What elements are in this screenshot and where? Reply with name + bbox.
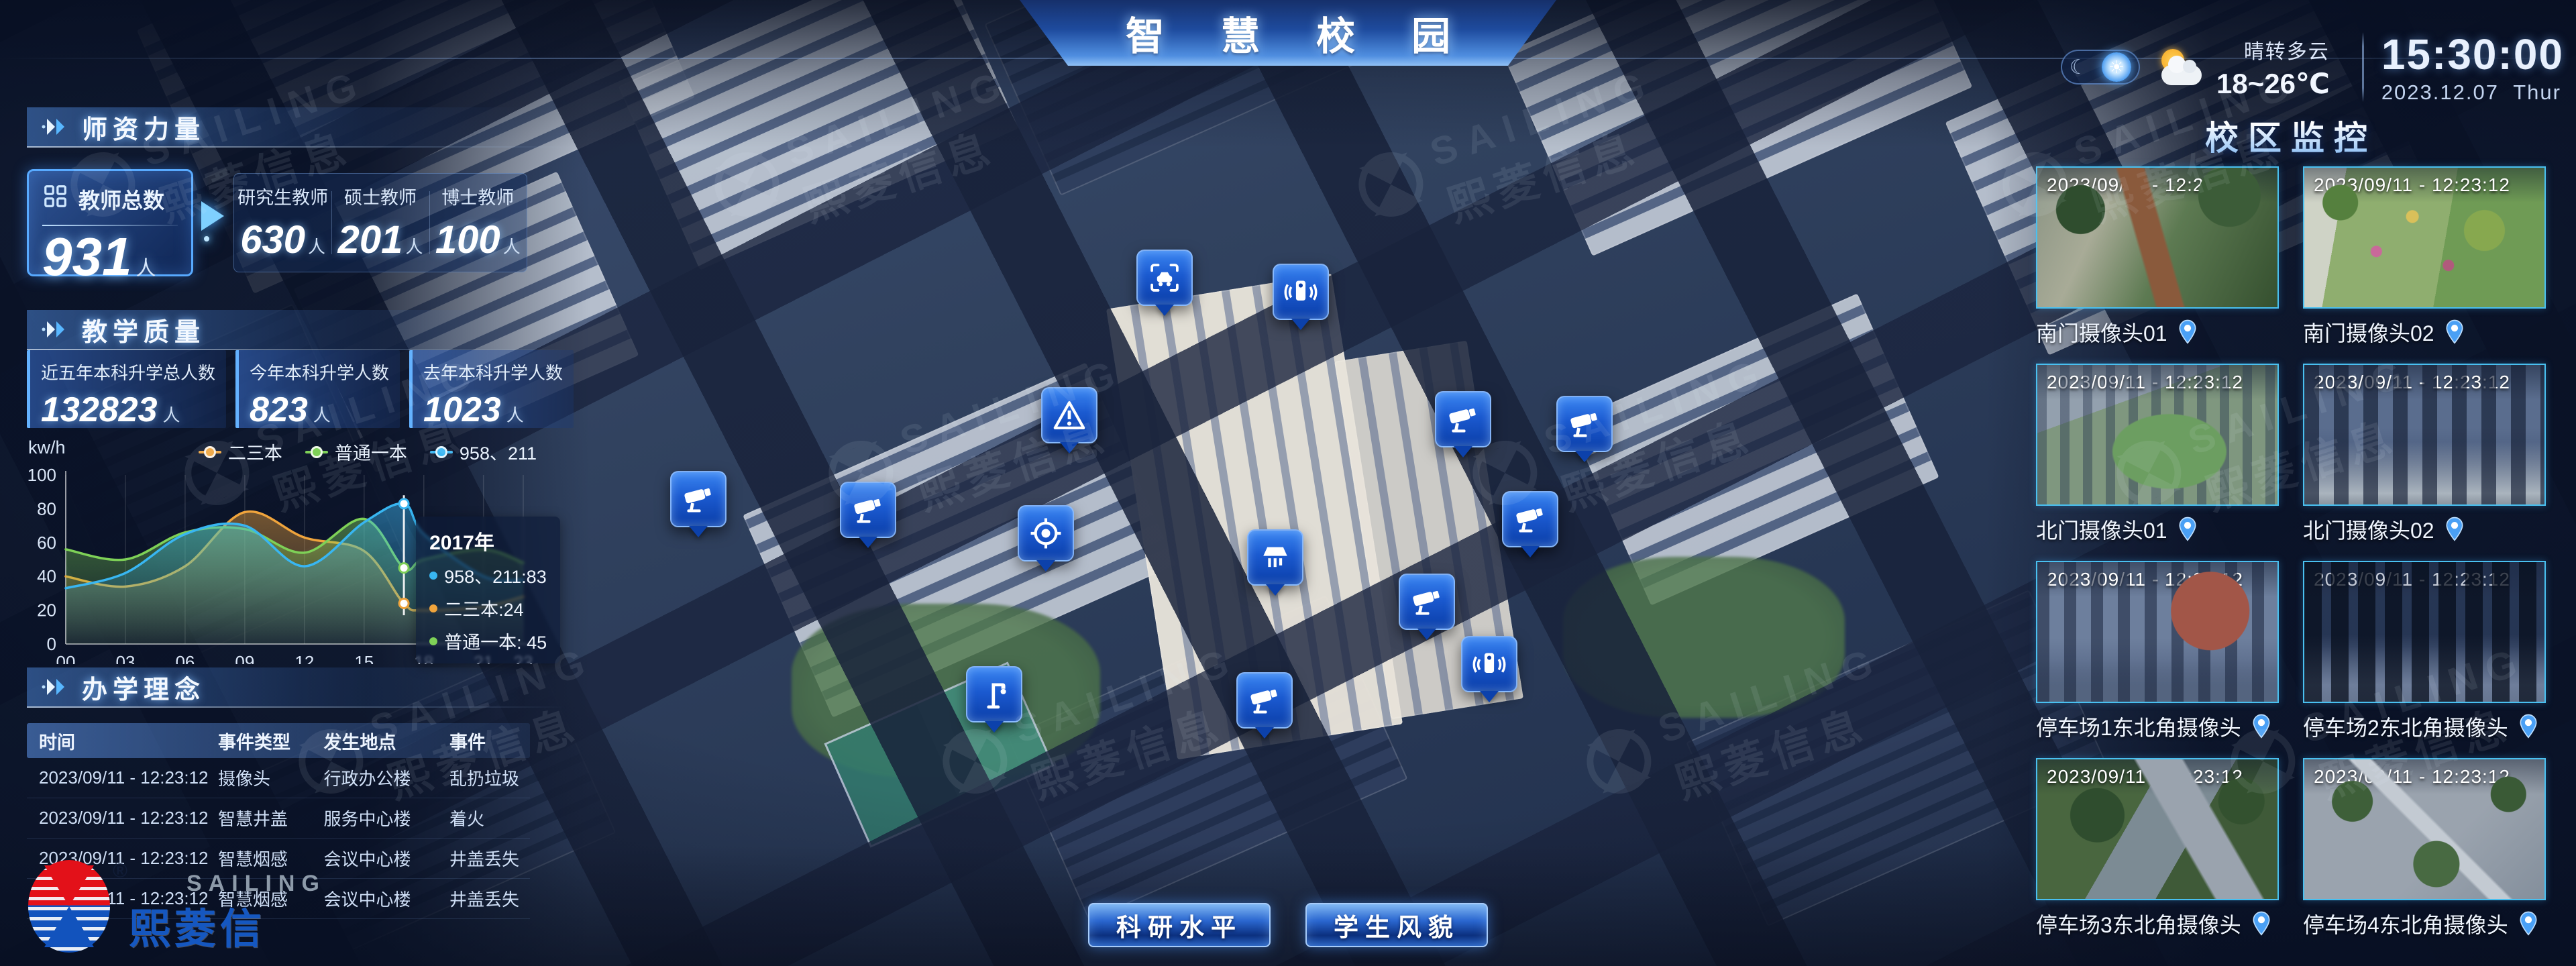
quality-stats: 近五年本科升学总人数 132823人今年本科升学人数 823人去年本科升学人数 … — [27, 350, 530, 428]
table-cell: 摄像头 — [218, 765, 324, 790]
camera-feed-5[interactable]: 2023/09/11 - 12:23:12 停车场1东北角摄像头 — [2036, 561, 2279, 742]
table-cell: 会议中心楼 — [324, 886, 450, 911]
logo-text-cn: 熙菱信息 — [129, 895, 310, 966]
quality-stat-card: 今年本科升学人数 823人 — [235, 350, 400, 428]
camera-timestamp: 2023/09/11 - 12:23:12 — [2037, 365, 2277, 400]
section-title: 办学理念 — [82, 669, 205, 706]
chart-tooltip: 2017年 958、211:83二三本:24普通一本: 45 — [416, 517, 560, 663]
car-scan-marker[interactable] — [1136, 250, 1193, 306]
arrow-right-icon — [201, 201, 224, 231]
weather-condition: 晴转多云 — [2216, 35, 2330, 64]
legend-marker — [305, 451, 328, 453]
card-divider — [42, 225, 178, 226]
section-title: 师资力量 — [82, 109, 205, 146]
camera-timestamp: 2023/09/11 - 12:23:12 — [2304, 365, 2544, 400]
research-level-button[interactable]: 科研水平 — [1088, 903, 1271, 947]
moon-icon[interactable]: ☾ — [2070, 56, 2088, 79]
legend-item[interactable]: 958、211 — [430, 439, 537, 465]
stat-label: 近五年本科升学总人数 — [41, 360, 215, 384]
clock-time: 15:30:00 — [2381, 30, 2564, 79]
camera-feed-7[interactable]: 2023/09/11 - 12:23:12 停车场3东北角摄像头 — [2036, 758, 2279, 939]
section-header-monitor: 校区监控 — [2036, 111, 2546, 160]
stat-label: 去年本科升学人数 — [423, 360, 563, 384]
page-title: 智 慧 校 园 — [1103, 5, 1473, 61]
tooltip-row: 二三本:24 — [429, 595, 547, 621]
table-cell: 井盖丢失 — [449, 886, 530, 911]
camera-grid: 2023/09/11 - 12:23:12 南门摄像头01 2023/09/11… — [2036, 166, 2546, 939]
table-cell: 会议中心楼 — [324, 846, 450, 871]
camera-timestamp: 2023/09/11 - 12:23:12 — [2304, 759, 2544, 794]
logo-text-en: SAILING — [186, 871, 326, 897]
camera-label: 南门摄像头01 — [2036, 317, 2279, 347]
svg-text:0: 0 — [47, 634, 56, 654]
topbar-separator — [2362, 32, 2364, 102]
camera-image[interactable]: 2023/09/11 - 12:23:12 — [2036, 561, 2279, 703]
series-dot — [429, 604, 437, 612]
table-cell: 着火 — [449, 806, 530, 830]
teacher-total-card[interactable]: 教师总数 931人 — [27, 169, 193, 276]
cctv-camera-marker[interactable] — [1236, 672, 1293, 729]
legend-label: 958、211 — [460, 439, 537, 465]
table-cell: 乱扔垃圾 — [449, 765, 530, 790]
camera-timestamp: 2023/09/11 - 12:23:12 — [2304, 168, 2544, 203]
teacher-total-label: 教师总数 — [78, 184, 164, 215]
weather-temperature: 18~26℃ — [2216, 67, 2330, 100]
clock: 15:30:00 2023.12.07 Thur — [2381, 30, 2564, 105]
legend-marker — [430, 451, 453, 453]
cctv-camera-marker[interactable] — [1399, 574, 1455, 630]
camera-image[interactable]: 2023/09/11 - 12:23:12 — [2303, 364, 2546, 506]
teacher-stat: 博士教师 100人 — [429, 174, 527, 272]
location-pin-icon — [2519, 911, 2538, 936]
stat-label: 今年本科升学人数 — [250, 360, 389, 384]
camera-timestamp: 2023/09/11 - 12:23:12 — [2037, 562, 2277, 597]
enrollment-chart[interactable]: kw/h 二三本普通一本958、211 02040608010000030609… — [27, 437, 537, 662]
series-dot — [429, 572, 437, 580]
table-cell: 行政办公楼 — [324, 765, 450, 790]
target-marker[interactable] — [1018, 505, 1074, 561]
teacher-stat: 研究生教师 630人 — [234, 174, 331, 272]
camera-timestamp: 2023/09/11 - 12:23:12 — [2304, 562, 2544, 597]
camera-label: 北门摄像头01 — [2036, 514, 2279, 545]
clock-date: 2023.12.07 Thur — [2381, 80, 2564, 105]
location-pin-icon — [2178, 319, 2197, 345]
cctv-camera-marker[interactable] — [670, 471, 727, 527]
smart-campus-dashboard: 智 慧 校 园 ☾ ☀ 晴转多云 18~26℃ 15:30:00 2023.12… — [0, 0, 2576, 966]
section-header-philosophy: 办学理念 — [27, 667, 527, 706]
camera-feed-6[interactable]: 2023/09/11 - 12:23:12 停车场2东北角摄像头 — [2303, 561, 2546, 742]
camera-label: 南门摄像头02 — [2303, 317, 2546, 347]
tooltip-row: 958、211:83 — [429, 562, 547, 588]
page-title-banner: 智 慧 校 园 — [1020, 0, 1556, 66]
stat-label: 研究生教师 — [237, 183, 328, 209]
section-header-quality: 教学质量 — [27, 310, 527, 349]
stat-label: 硕士教师 — [344, 183, 417, 209]
tooltip-row: 普通一本: 45 — [429, 628, 547, 654]
column-header: 事件类型 — [218, 728, 324, 754]
table-row[interactable]: 2023/09/11 - 12:23:12摄像头行政办公楼乱扔垃圾 — [27, 758, 530, 798]
location-pin-icon — [2252, 911, 2271, 936]
legend-label: 普通一本 — [335, 439, 407, 465]
table-row[interactable]: 2023/09/11 - 12:23:12智慧井盖服务中心楼着火 — [27, 798, 530, 839]
svg-text:00: 00 — [56, 652, 76, 664]
location-pin-icon — [2445, 517, 2464, 542]
location-pin-icon — [2445, 319, 2464, 345]
access-gate-marker[interactable] — [1461, 636, 1517, 692]
camera-feed-1[interactable]: 2023/09/11 - 12:23:12 南门摄像头01 — [2036, 166, 2279, 347]
smoke-detector-marker[interactable] — [1247, 529, 1303, 586]
legend-item[interactable]: 普通一本 — [305, 439, 407, 465]
camera-image[interactable]: 2023/09/11 - 12:23:12 — [2036, 166, 2279, 309]
stat-value: 201人 — [338, 217, 423, 262]
camera-image[interactable]: 2023/09/11 - 12:23:12 — [2036, 364, 2279, 506]
camera-image[interactable]: 2023/09/11 - 12:23:12 — [2303, 561, 2546, 703]
camera-timestamp: 2023/09/11 - 12:23:12 — [2037, 168, 2277, 203]
camera-feed-3[interactable]: 2023/09/11 - 12:23:12 北门摄像头01 — [2036, 364, 2279, 545]
column-header: 发生地点 — [324, 728, 450, 754]
camera-feed-8[interactable]: 2023/09/11 - 12:23:12 停车场4东北角摄像头 — [2303, 758, 2546, 939]
sun-icon[interactable]: ☀ — [2102, 52, 2131, 82]
cctv-camera-marker[interactable] — [1556, 396, 1613, 452]
weather-info: 晴转多云 18~26℃ — [2216, 35, 2330, 100]
svg-text:20: 20 — [37, 600, 56, 621]
camera-image[interactable]: 2023/09/11 - 12:23:12 — [2036, 758, 2279, 900]
table-cell: 智慧井盖 — [218, 806, 324, 830]
legend-item[interactable]: 二三本 — [199, 439, 282, 465]
student-style-button[interactable]: 学生风貌 — [1305, 903, 1488, 947]
tooltip-title: 2017年 — [429, 526, 547, 555]
table-cell: 井盖丢失 — [449, 846, 530, 871]
chevron-right-icon — [42, 117, 71, 137]
street-lamp-marker[interactable] — [966, 666, 1022, 722]
stat-value: 132823人 — [41, 390, 215, 430]
svg-text:100: 100 — [28, 465, 56, 485]
svg-text:80: 80 — [37, 498, 56, 519]
legend-label: 二三本 — [228, 439, 282, 465]
footer-buttons: 科研水平 学生风貌 — [1088, 903, 1488, 947]
camera-image[interactable]: 2023/09/11 - 12:23:12 — [2303, 758, 2546, 900]
events-table-header: 时间事件类型发生地点事件 — [27, 723, 530, 758]
status-bar: ☾ ☀ 晴转多云 18~26℃ 15:30:00 2023.12.07 Thur — [2061, 27, 2564, 107]
svg-text:15: 15 — [354, 652, 374, 664]
teacher-stat: 硕士教师 201人 — [331, 174, 429, 272]
camera-label: 停车场3东北角摄像头 — [2036, 908, 2279, 939]
column-header: 事件 — [449, 728, 530, 754]
section-header-faculty: 师资力量 — [27, 107, 527, 146]
weather-cloud-icon — [2161, 65, 2202, 85]
legend-marker — [199, 451, 221, 453]
camera-image[interactable]: 2023/09/11 - 12:23:12 — [2303, 166, 2546, 309]
weather-icon — [2157, 48, 2207, 87]
stat-value: 1023人 — [423, 390, 563, 430]
day-night-toggle[interactable]: ☾ ☀ — [2061, 50, 2140, 85]
company-logo: ® SAILING 熙菱信息 — [28, 860, 310, 961]
chevron-right-icon — [42, 677, 71, 697]
table-cell: 服务中心楼 — [324, 806, 450, 830]
warning-marker[interactable] — [1041, 387, 1097, 443]
teacher-breakdown-panel: 研究生教师 630人硕士教师 201人博士教师 100人 — [233, 173, 527, 272]
grid-icon — [42, 183, 69, 215]
camera-label: 停车场4东北角摄像头 — [2303, 908, 2546, 939]
cctv-camera-marker[interactable] — [1435, 391, 1491, 447]
svg-text:06: 06 — [175, 652, 195, 664]
stat-value: 630人 — [240, 217, 325, 262]
camera-feed-2[interactable]: 2023/09/11 - 12:23:12 南门摄像头02 — [2303, 166, 2546, 347]
location-pin-icon — [2252, 714, 2271, 739]
section-title: 教学质量 — [82, 311, 205, 348]
chart-legend: 二三本普通一本958、211 — [199, 439, 537, 465]
series-dot — [429, 637, 437, 645]
location-pin-icon — [2519, 714, 2538, 739]
chevron-right-icon — [42, 319, 71, 339]
table-cell: 2023/09/11 - 12:23:12 — [27, 808, 218, 828]
stat-value: 823人 — [250, 390, 389, 430]
location-pin-icon — [2178, 517, 2197, 542]
table-cell: 2023/09/11 - 12:23:12 — [27, 767, 218, 788]
svg-text:40: 40 — [37, 566, 56, 586]
stat-value: 100人 — [435, 217, 521, 262]
column-header: 时间 — [27, 728, 218, 754]
svg-text:03: 03 — [115, 652, 135, 664]
svg-text:60: 60 — [37, 533, 56, 553]
stat-label: 博士教师 — [441, 183, 514, 209]
camera-label: 停车场2东北角摄像头 — [2303, 711, 2546, 742]
camera-label: 北门摄像头02 — [2303, 514, 2546, 545]
registered-mark: ® — [113, 860, 127, 883]
quality-stat-card: 近五年本科升学总人数 132823人 — [27, 350, 226, 428]
quality-stat-card: 去年本科升学人数 1023人 — [409, 350, 574, 428]
svg-text:12: 12 — [294, 652, 314, 664]
camera-feed-4[interactable]: 2023/09/11 - 12:23:12 北门摄像头02 — [2303, 364, 2546, 545]
cctv-camera-marker[interactable] — [1502, 491, 1558, 547]
cctv-camera-marker[interactable] — [840, 482, 896, 538]
svg-text:09: 09 — [235, 652, 254, 664]
camera-label: 停车场1东北角摄像头 — [2036, 711, 2279, 742]
teacher-total-value: 931人 — [42, 230, 178, 284]
camera-timestamp: 2023/09/11 - 12:23:12 — [2037, 759, 2277, 794]
chart-y-axis-label: kw/h — [28, 437, 66, 458]
access-gate-marker[interactable] — [1273, 264, 1329, 320]
